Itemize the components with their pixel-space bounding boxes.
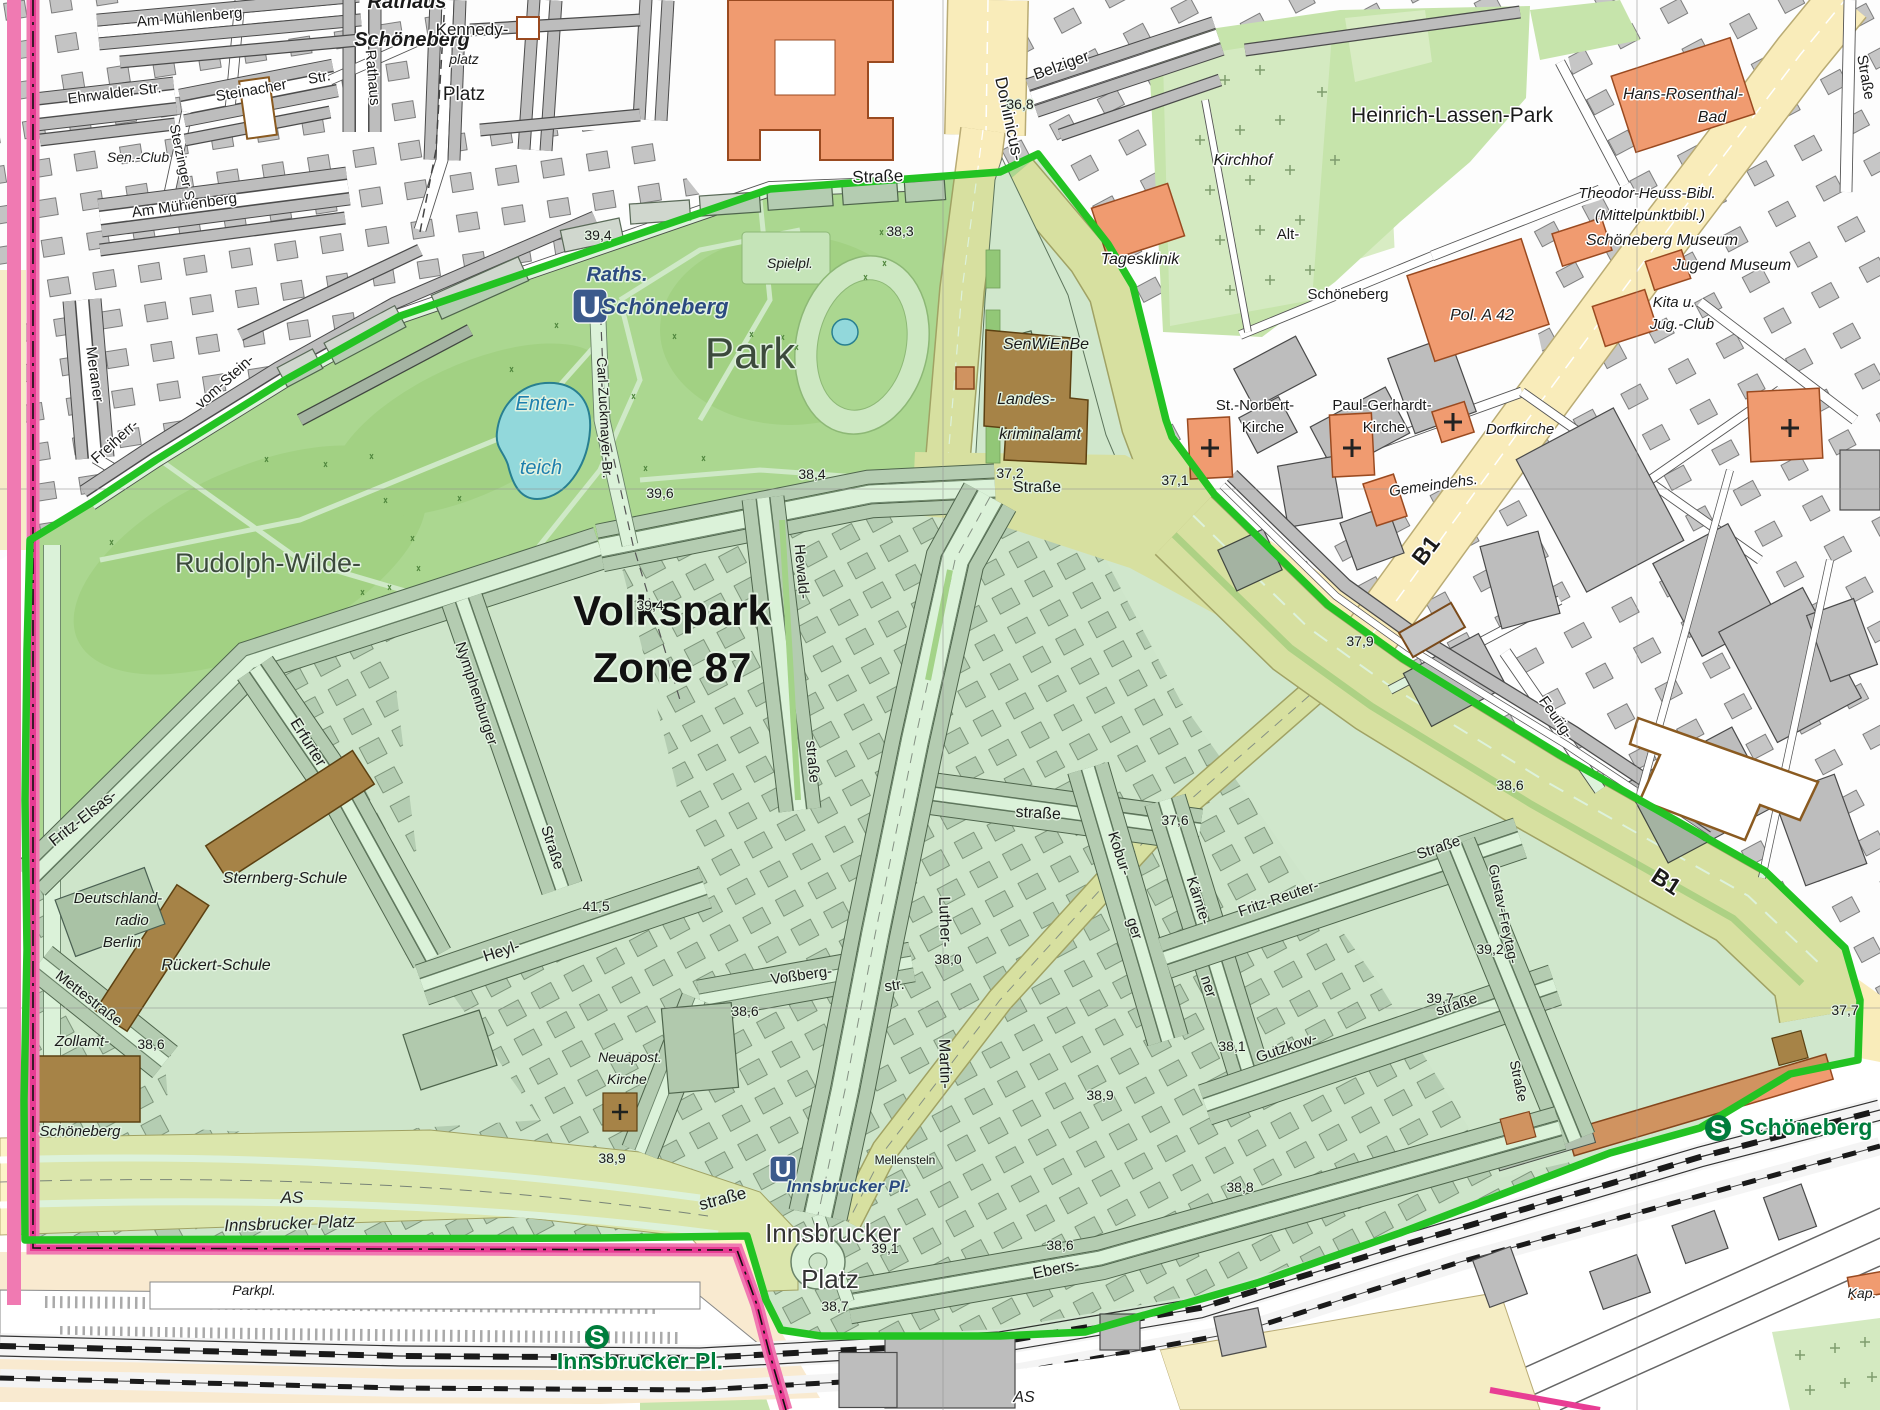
svg-text:37,9: 37,9 [1346, 633, 1373, 649]
svg-text:Jugend Museum: Jugend Museum [1672, 257, 1791, 274]
svg-text:Heinrich-Lassen-Park: Heinrich-Lassen-Park [1351, 104, 1553, 127]
svg-text:39,4: 39,4 [636, 597, 663, 613]
svg-text:Luther-: Luther- [935, 896, 954, 947]
svg-text:Platz: Platz [801, 1264, 859, 1294]
svg-text:Innsbrucker Pl.: Innsbrucker Pl. [787, 1177, 910, 1196]
svg-text:38,0: 38,0 [934, 951, 961, 967]
svg-text:Platz: Platz [443, 84, 485, 105]
svg-text:Berlin: Berlin [103, 934, 141, 951]
svg-text:37,2: 37,2 [996, 465, 1023, 481]
svg-text:39,7: 39,7 [1426, 990, 1453, 1006]
svg-text:37,7: 37,7 [1831, 1002, 1858, 1018]
svg-text:S: S [590, 1324, 605, 1349]
svg-text:platz: platz [448, 51, 479, 67]
svg-text:Straße: Straße [1013, 479, 1061, 496]
svg-text:Schöneberg: Schöneberg [1308, 286, 1389, 303]
svg-text:39,2: 39,2 [1476, 941, 1503, 957]
svg-text:Volkspark: Volkspark [573, 587, 771, 634]
svg-text:Kirchhof: Kirchhof [1214, 152, 1274, 169]
svg-text:str.: str. [883, 976, 905, 996]
svg-text:Zone 87: Zone 87 [593, 644, 752, 691]
svg-text:Kennedy-: Kennedy- [436, 20, 509, 39]
svg-text:37,6: 37,6 [1161, 812, 1188, 828]
svg-text:Bad: Bad [1698, 109, 1728, 126]
svg-text:S: S [1710, 1115, 1725, 1141]
svg-text:Tagesklinik: Tagesklinik [1101, 251, 1181, 268]
svg-text:Rathaus: Rathaus [368, 0, 447, 13]
svg-text:AS: AS [280, 1188, 304, 1207]
svg-text:Kap.: Kap. [1848, 1285, 1877, 1301]
svg-text:Sternberg-Schule: Sternberg-Schule [223, 870, 348, 887]
svg-text:Pol. A 42: Pol. A 42 [1450, 307, 1514, 324]
svg-text:Hans-Rosenthal-: Hans-Rosenthal- [1623, 86, 1743, 103]
svg-text:39,1: 39,1 [871, 1240, 898, 1256]
svg-text:Schöneberg: Schöneberg [601, 294, 729, 319]
svg-text:Mellensteln: Mellensteln [875, 1153, 936, 1167]
svg-text:38,6: 38,6 [1046, 1237, 1073, 1253]
svg-text:Straße: Straße [852, 166, 904, 187]
svg-text:38,3: 38,3 [886, 223, 913, 239]
svg-text:36,8: 36,8 [1006, 96, 1033, 112]
svg-text:Dorfkirche: Dorfkirche [1486, 421, 1554, 438]
svg-text:SenWiEnBe: SenWiEnBe [1003, 336, 1089, 353]
svg-text:Alt-: Alt- [1277, 226, 1300, 243]
svg-text:Enten-: Enten- [516, 393, 575, 415]
svg-text:Theodor-Heuss-Bibl.: Theodor-Heuss-Bibl. [1578, 185, 1715, 202]
svg-text:38,8: 38,8 [1226, 1179, 1253, 1195]
svg-text:Landes-: Landes- [997, 391, 1055, 408]
svg-text:38,9: 38,9 [598, 1150, 625, 1166]
svg-text:Spielpl.: Spielpl. [767, 255, 813, 271]
svg-text:Schöneberg: Schöneberg [1740, 1114, 1873, 1140]
svg-text:St.-Norbert-: St.-Norbert- [1216, 397, 1294, 414]
svg-text:38,6: 38,6 [1496, 777, 1523, 793]
svg-text:Parkpl.: Parkpl. [232, 1282, 276, 1298]
svg-text:Paul-Gerhardt-: Paul-Gerhardt- [1332, 397, 1431, 414]
svg-text:Schöneberg Museum: Schöneberg Museum [1586, 232, 1738, 249]
svg-text:37,1: 37,1 [1161, 472, 1188, 488]
svg-text:38,7: 38,7 [821, 1298, 848, 1314]
svg-text:Schöneberg: Schöneberg [40, 1123, 122, 1140]
svg-text:Jug.-Club: Jug.-Club [1649, 316, 1714, 333]
svg-text:Innsbrucker Pl.: Innsbrucker Pl. [557, 1348, 723, 1374]
svg-text:Zollamt-: Zollamt- [54, 1033, 109, 1050]
svg-text:Kirche: Kirche [1363, 419, 1406, 436]
svg-text:(Mittelpunktbibl.): (Mittelpunktbibl.) [1595, 207, 1705, 224]
svg-text:38,6: 38,6 [731, 1003, 758, 1019]
svg-text:38,6: 38,6 [137, 1036, 164, 1052]
svg-text:41,5: 41,5 [582, 898, 609, 914]
svg-text:39,6: 39,6 [646, 485, 673, 501]
svg-text:Park: Park [705, 329, 796, 378]
svg-text:Rückert-Schule: Rückert-Schule [161, 957, 270, 974]
svg-text:Kirche: Kirche [607, 1071, 647, 1087]
svg-text:radio: radio [115, 912, 148, 929]
svg-text:Neuapost.: Neuapost. [598, 1049, 662, 1065]
svg-text:39,4: 39,4 [584, 227, 611, 243]
svg-text:Martin-: Martin- [935, 1039, 954, 1089]
svg-text:38,1: 38,1 [1218, 1038, 1245, 1054]
svg-text:teich: teich [520, 457, 562, 479]
svg-text:Kita u.: Kita u. [1653, 294, 1696, 311]
svg-text:Deutschland-: Deutschland- [74, 890, 162, 907]
svg-text:straße: straße [1015, 804, 1061, 823]
svg-text:Raths.: Raths. [586, 264, 647, 286]
svg-text:AS: AS [1012, 1389, 1035, 1406]
svg-text:Rudolph-Wilde-: Rudolph-Wilde- [175, 548, 361, 578]
svg-text:U: U [579, 291, 601, 324]
svg-text:Sen.-Club: Sen.-Club [107, 149, 169, 165]
svg-text:Kirche: Kirche [1242, 419, 1285, 436]
svg-text:kriminalamt: kriminalamt [999, 426, 1081, 443]
svg-text:38,4: 38,4 [798, 466, 825, 482]
svg-text:38,9: 38,9 [1086, 1087, 1113, 1103]
